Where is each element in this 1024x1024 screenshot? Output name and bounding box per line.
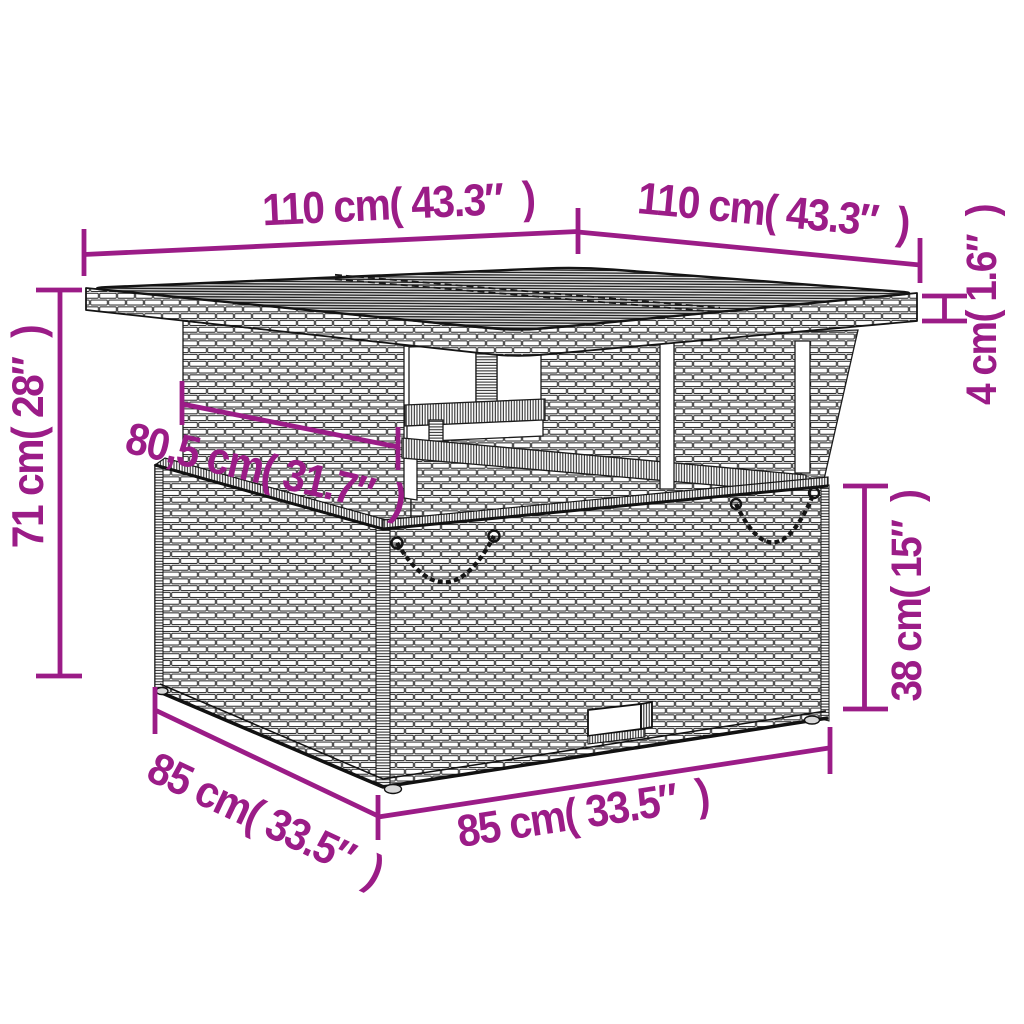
svg-text:71 cm( 28″ ): 71 cm( 28″ ) (3, 326, 53, 549)
svg-text:38 cm( 15″ ): 38 cm( 15″ ) (882, 491, 930, 702)
svg-text:4 cm( 1.6″ ): 4 cm( 1.6″ ) (957, 205, 1005, 405)
